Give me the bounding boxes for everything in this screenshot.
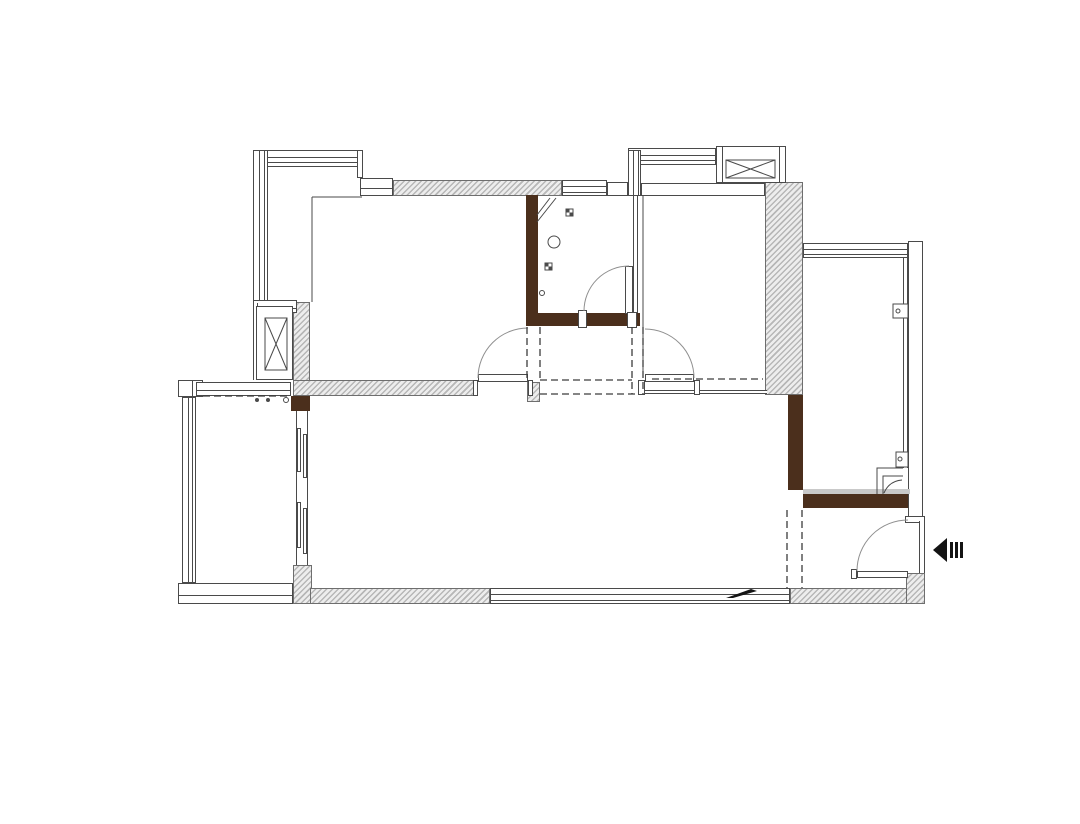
door-arc-bedroom1 xyxy=(478,328,528,378)
shaft-left-x-icon xyxy=(265,318,287,370)
balcony-dot-3 xyxy=(284,398,289,403)
bathroom-circle-fixture xyxy=(548,236,560,248)
shaft-right-x-icon xyxy=(726,160,775,178)
shower-corner-icon xyxy=(537,198,556,222)
bathroom-small-circle xyxy=(540,291,545,296)
door-arc-bathroom xyxy=(584,266,629,311)
balcony-dot-1 xyxy=(255,398,259,402)
entrance-arrow-bar-1 xyxy=(950,542,953,558)
floor-drain-1-fill xyxy=(566,209,573,216)
plan-linework xyxy=(0,0,1080,824)
entrance-arrow-bar-2 xyxy=(955,542,958,558)
rbalcony-corner-detail xyxy=(877,468,903,494)
door-arc-entry xyxy=(857,520,908,571)
door-arc-bedroom2 xyxy=(645,329,694,378)
floor-drain-2-fill xyxy=(545,263,552,270)
floor-plan xyxy=(0,0,1080,824)
entrance-arrow-icon xyxy=(933,538,947,562)
sill-marker-icon xyxy=(726,589,757,598)
balcony-dot-2 xyxy=(266,398,270,402)
entrance-arrow-bar-3 xyxy=(960,542,963,558)
